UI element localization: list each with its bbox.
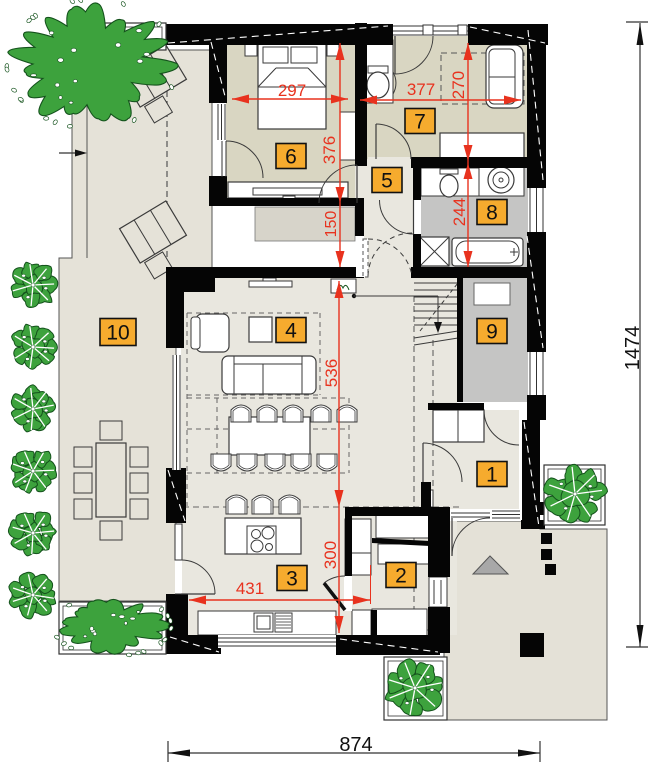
svg-text:536: 536 (322, 359, 341, 387)
svg-text:377: 377 (407, 80, 435, 99)
svg-text:376: 376 (320, 136, 339, 164)
svg-text:1: 1 (486, 464, 498, 487)
svg-text:8: 8 (486, 202, 498, 225)
svg-text:244: 244 (450, 198, 469, 226)
svg-text:6: 6 (285, 146, 297, 169)
svg-text:270: 270 (449, 71, 468, 99)
svg-text:297: 297 (278, 81, 306, 100)
svg-text:300: 300 (321, 541, 340, 569)
svg-text:2: 2 (395, 565, 407, 588)
svg-text:3: 3 (286, 568, 298, 591)
svg-text:150: 150 (323, 211, 340, 238)
svg-text:7: 7 (414, 111, 426, 134)
svg-text:874: 874 (339, 734, 372, 756)
svg-text:9: 9 (486, 321, 498, 344)
svg-text:5: 5 (381, 170, 393, 193)
svg-text:431: 431 (236, 579, 264, 598)
svg-text:1474: 1474 (622, 326, 644, 371)
svg-text:4: 4 (285, 320, 297, 343)
svg-text:10: 10 (106, 322, 129, 345)
